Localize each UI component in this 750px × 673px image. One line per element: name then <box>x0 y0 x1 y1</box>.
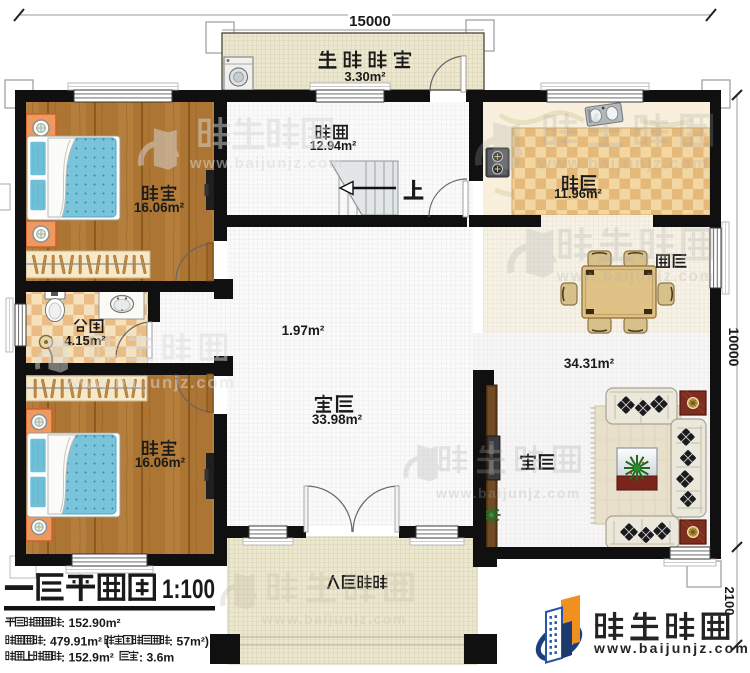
svg-text:www.baijunjz.com: www.baijunjz.com <box>64 373 236 392</box>
svg-text:16.06m²: 16.06m² <box>135 455 186 470</box>
svg-text:34.31m²: 34.31m² <box>564 356 615 371</box>
svg-text:www.baijunjz.com: www.baijunjz.com <box>537 154 709 173</box>
svg-text:www.baijunjz.com: www.baijunjz.com <box>556 268 715 285</box>
svg-text:: 57m²): : 57m²) <box>169 635 209 649</box>
svg-text:10000: 10000 <box>726 328 742 367</box>
svg-text:3.30m²: 3.30m² <box>344 69 386 84</box>
svg-text:1.97m²: 1.97m² <box>282 323 325 338</box>
svg-text:: 152.90m²: : 152.90m² <box>61 616 121 630</box>
svg-text:: 479.91m² (: : 479.91m² ( <box>43 635 111 649</box>
svg-text:33.98m²: 33.98m² <box>312 412 363 427</box>
svg-text:www.baijunjz.com: www.baijunjz.com <box>435 485 581 501</box>
svg-text:1:100: 1:100 <box>162 574 215 604</box>
svg-text:www.baijunjz.com: www.baijunjz.com <box>593 640 750 656</box>
svg-text:11.96m²: 11.96m² <box>554 186 602 201</box>
svg-text:2100: 2100 <box>722 587 737 616</box>
svg-text:www.baijunjz.com: www.baijunjz.com <box>261 611 407 627</box>
svg-text:15000: 15000 <box>349 13 391 30</box>
svg-text:: 152.9m²: : 152.9m² <box>61 651 114 665</box>
svg-text:: 3.6m: : 3.6m <box>139 651 174 665</box>
svg-text:www.baijunjz.com: www.baijunjz.com <box>189 155 343 172</box>
svg-text:16.06m²: 16.06m² <box>134 200 185 215</box>
